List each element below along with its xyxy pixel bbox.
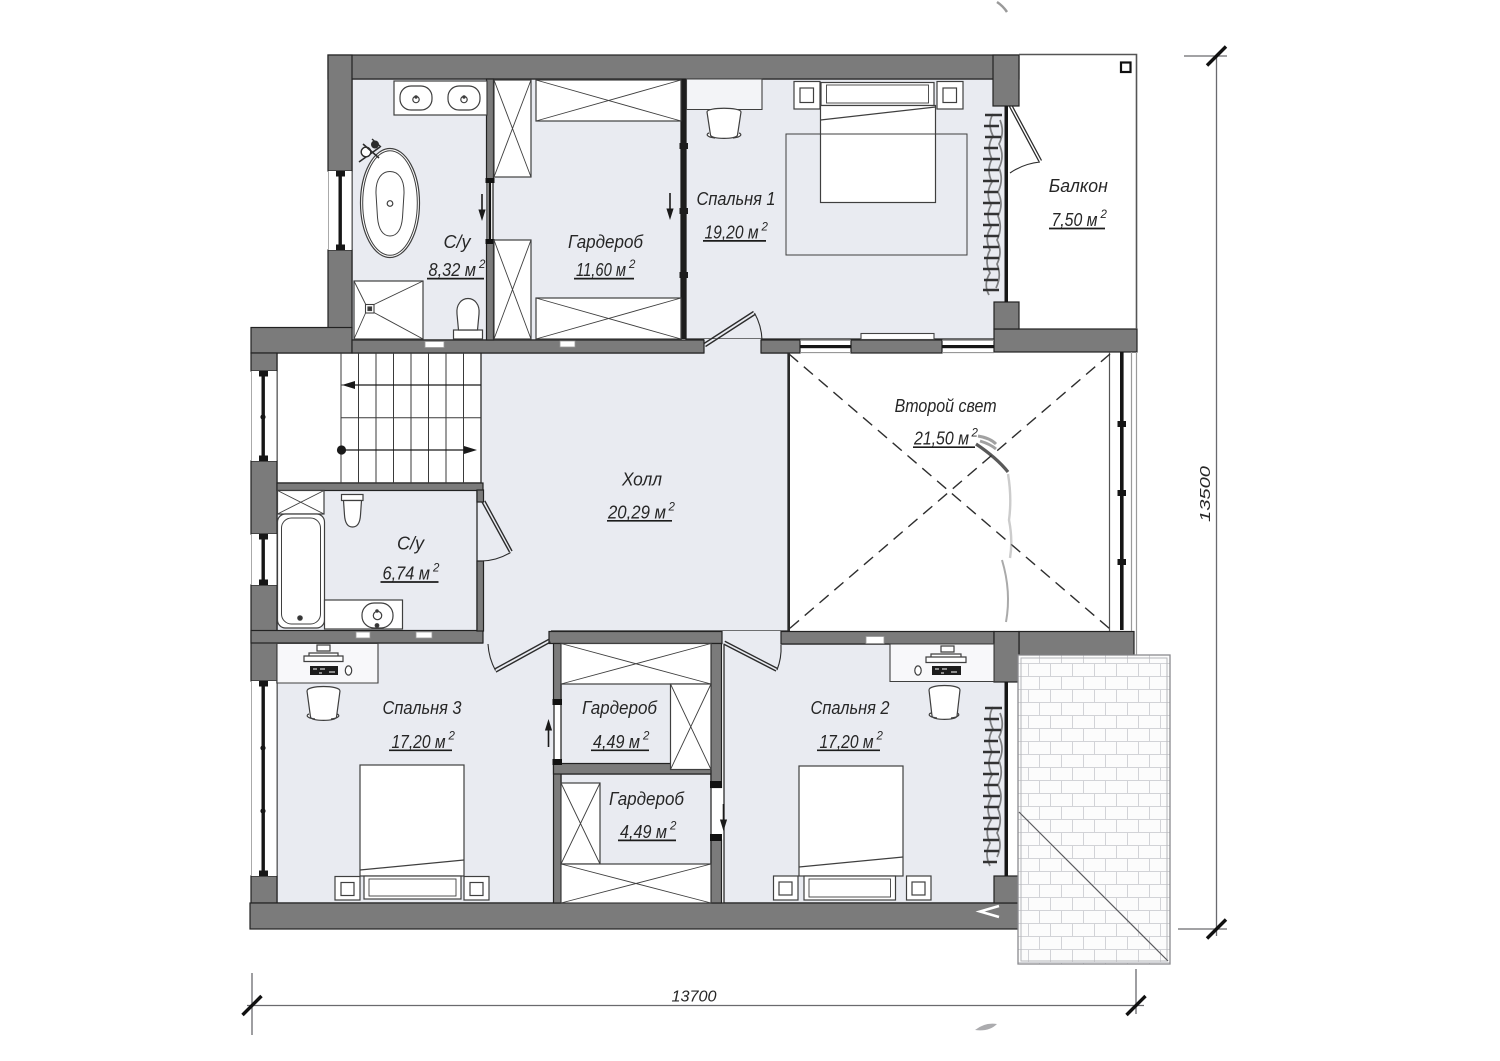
svg-text:13500: 13500 <box>1197 465 1214 522</box>
svg-text:2: 2 <box>478 259 486 271</box>
svg-text:Спальня 2: Спальня 2 <box>811 697 891 718</box>
svg-text:17,20 м: 17,20 м <box>820 731 874 752</box>
svg-text:17,20 м: 17,20 м <box>392 731 446 752</box>
svg-text:Холл: Холл <box>621 469 662 490</box>
svg-text:13700: 13700 <box>672 989 717 1006</box>
svg-text:2: 2 <box>1100 209 1108 221</box>
svg-text:8,32 м: 8,32 м <box>429 259 477 280</box>
svg-text:Гардероб: Гардероб <box>568 231 644 252</box>
svg-text:2: 2 <box>642 731 650 743</box>
svg-text:2: 2 <box>448 731 456 743</box>
svg-text:20,29 м: 20,29 м <box>607 501 666 522</box>
svg-text:11,60 м: 11,60 м <box>576 259 626 280</box>
svg-text:7,50 м: 7,50 м <box>1052 209 1098 230</box>
svg-text:Второй свет: Второй свет <box>895 395 997 416</box>
svg-text:2: 2 <box>669 821 677 833</box>
svg-text:2: 2 <box>432 563 440 575</box>
svg-text:2: 2 <box>628 259 636 271</box>
svg-text:19,20 м: 19,20 м <box>705 222 759 243</box>
svg-text:С/у: С/у <box>444 231 473 252</box>
svg-text:Гардероб: Гардероб <box>609 788 685 809</box>
svg-text:2: 2 <box>761 222 769 234</box>
svg-text:6,74 м: 6,74 м <box>383 563 431 584</box>
svg-text:Гардероб: Гардероб <box>582 697 658 718</box>
svg-text:С/у: С/у <box>397 533 426 554</box>
svg-text:Балкон: Балкон <box>1049 175 1108 196</box>
svg-text:Спальня 3: Спальня 3 <box>383 697 463 718</box>
svg-text:2: 2 <box>668 501 676 513</box>
svg-text:4,49 м: 4,49 м <box>593 731 640 752</box>
svg-text:21,50 м: 21,50 м <box>913 427 969 448</box>
svg-text:2: 2 <box>971 427 979 439</box>
svg-text:2: 2 <box>876 731 884 743</box>
svg-text:4,49 м: 4,49 м <box>620 821 667 842</box>
svg-text:Спальня 1: Спальня 1 <box>697 188 776 209</box>
